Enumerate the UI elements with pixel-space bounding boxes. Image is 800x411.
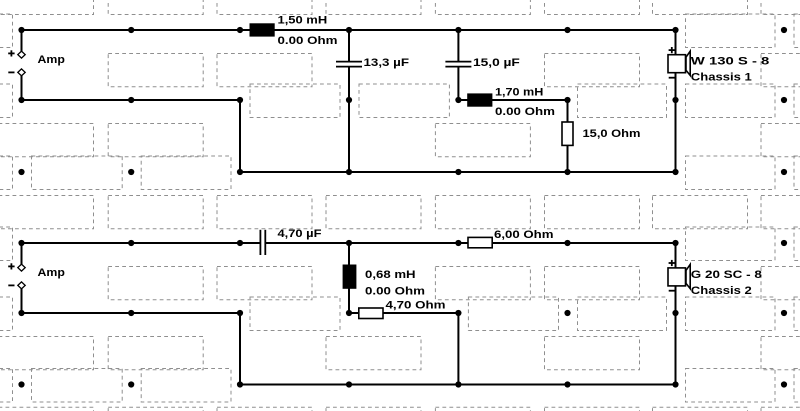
svg-text:4,70 Ohm: 4,70 Ohm — [386, 299, 446, 311]
svg-text:1,50 mH: 1,50 mH — [278, 14, 328, 26]
svg-text:6,00 Ohm: 6,00 Ohm — [494, 229, 554, 241]
svg-text:G 20 SC - 8: G 20 SC - 8 — [691, 269, 762, 281]
svg-text:Amp: Amp — [38, 54, 66, 66]
svg-text:Chassis 2: Chassis 2 — [691, 285, 752, 297]
svg-text:15,0 µF: 15,0 µF — [473, 57, 520, 69]
svg-text:Chassis 1: Chassis 1 — [691, 71, 752, 83]
svg-text:13,3 µF: 13,3 µF — [364, 57, 410, 69]
svg-text:Amp: Amp — [38, 267, 66, 279]
svg-text:0,68 mH: 0,68 mH — [365, 269, 416, 281]
svg-text:15,0 Ohm: 15,0 Ohm — [583, 128, 641, 140]
svg-text:1,70 mH: 1,70 mH — [495, 86, 543, 98]
svg-text:W 130 S - 8: W 130 S - 8 — [691, 56, 770, 68]
svg-text:0.00 Ohm: 0.00 Ohm — [495, 106, 555, 118]
svg-text:0.00 Ohm: 0.00 Ohm — [278, 35, 338, 47]
svg-text:0.00 Ohm: 0.00 Ohm — [365, 285, 425, 297]
svg-text:4,70 µF: 4,70 µF — [278, 228, 322, 240]
